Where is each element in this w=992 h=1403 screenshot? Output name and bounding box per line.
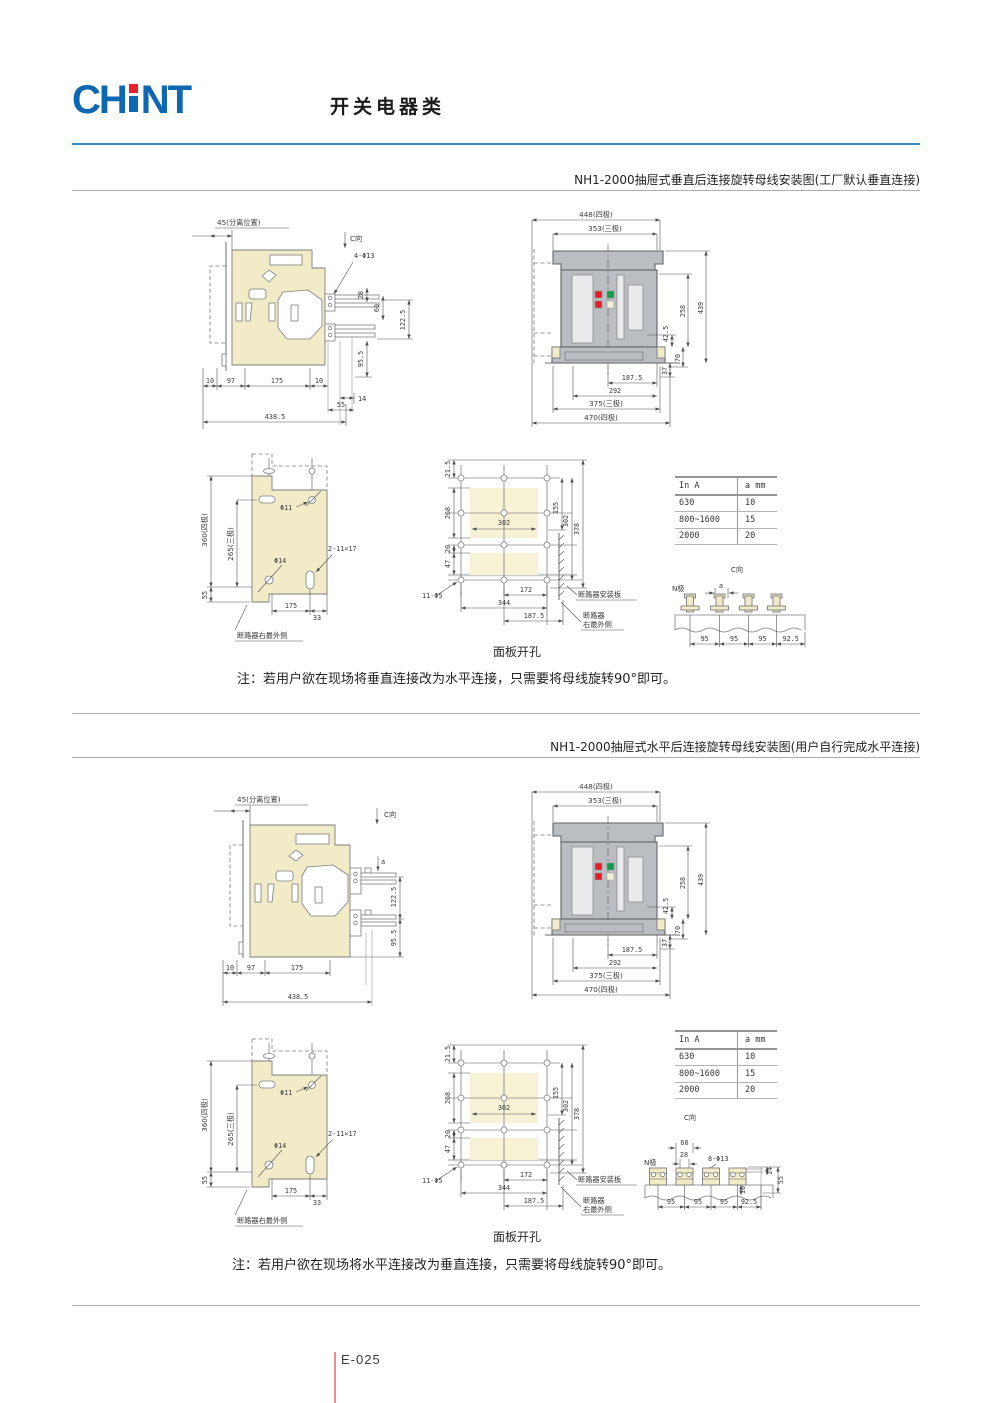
projection-lines — [328, 337, 352, 425]
dim-label: 2-11×17 — [328, 545, 357, 553]
part-label: 断路器右最外侧 — [237, 1216, 287, 1225]
view-label: C向 — [731, 565, 743, 574]
s1-mounting-plate-drawing: Φ11 Φ14 2-11×17 360(四极) 55 265(三极) 175 3… — [195, 444, 425, 659]
header-rule — [72, 143, 920, 145]
dim-label: 10 — [206, 377, 214, 385]
section1-note: 注：若用户欲在现场将垂直连接改为水平连接，只需要将母线旋转90°即可。 — [237, 668, 676, 687]
part-label: 断路器 — [583, 1196, 605, 1205]
table-row: 630 10 — [675, 496, 777, 513]
col-header: In A — [675, 1032, 738, 1048]
dim-label: 45(分离位置) — [217, 218, 261, 227]
dim-label: 95 — [667, 1198, 675, 1206]
s1-panel-cutout-drawing: 302 21.5 268 20 47 155 302 378 172 344 1… — [420, 445, 670, 670]
dim-label: 28 — [680, 1151, 688, 1159]
drawing-caption: 面板开孔 — [493, 1230, 541, 1244]
s2-front-view-drawing: 448(四极) 353(三极) 258 439 42.5 70 37 187.5… — [520, 778, 750, 1023]
part-label: N极 — [672, 584, 685, 593]
dim-label: 187.5 — [622, 374, 642, 382]
dim-label: 448(四极) — [579, 782, 613, 791]
dim-label: Φ11 — [280, 504, 292, 512]
dim-label: 375(三极) — [589, 399, 623, 408]
cell: 10 — [738, 1052, 755, 1062]
dim-label: 438.5 — [265, 413, 285, 421]
page-title: 开关电器类 — [330, 92, 445, 119]
dim-label: 60 — [680, 1139, 688, 1147]
dim-label: 55 — [777, 1176, 785, 1184]
col-header: In A — [675, 478, 738, 494]
dim-label: 187.5 — [524, 612, 544, 620]
part-label: 断路器安装板 — [578, 590, 621, 599]
dim-label: 42.5 — [662, 326, 670, 342]
dim-label: 14 — [766, 1167, 774, 1175]
footer-rule — [72, 1305, 920, 1306]
dim-label: 258 — [679, 877, 687, 889]
dim-label: 95.5 — [357, 351, 365, 367]
dim-label: 10 — [226, 964, 234, 972]
cell: 800~1600 — [675, 1066, 738, 1082]
dim-label: 14 — [358, 395, 366, 403]
footer-accent-line — [334, 1352, 336, 1403]
dim-label: 95.5 — [390, 930, 398, 946]
cell: 630 — [675, 1050, 738, 1066]
s2-rating-table: In A a mm 630 10 800~1600 15 2000 20 — [675, 1030, 777, 1099]
dim-label: C向 — [350, 234, 362, 243]
dim-label: 21.5 — [444, 461, 452, 477]
cell: 20 — [738, 531, 755, 541]
breaker-front-body — [534, 244, 680, 374]
cell: 2000 — [675, 1083, 738, 1099]
dim-label: 97 — [247, 964, 255, 972]
cell: 630 — [675, 496, 738, 512]
dim-label: 344 — [498, 599, 510, 607]
dim-label: 70 — [674, 354, 682, 362]
dim-label: 33 — [313, 1199, 321, 1207]
dim-label: 33 — [313, 614, 321, 622]
dim-label: 172 — [520, 1171, 532, 1179]
logo-text-ch: CH — [72, 84, 126, 116]
dim-label: 375(三极) — [589, 971, 623, 980]
logo-i-glyph — [129, 84, 138, 112]
rear-terminals — [325, 294, 379, 341]
cell: 2000 — [675, 529, 738, 545]
part-label: 断路器 — [583, 611, 605, 620]
dim-label: 37 — [661, 939, 669, 947]
s2-mounting-plate-drawing: Φ11 Φ14 2-11×17 360(四极) 55 265(三极) 175 3… — [195, 1029, 425, 1244]
dim-label: 20 — [444, 1130, 452, 1138]
dim-label: a — [381, 858, 385, 866]
dim-label: 42.5 — [662, 898, 670, 914]
dim-label: 292 — [609, 959, 621, 967]
table-row: 2000 20 — [675, 529, 777, 546]
dim-label: 2-11×17 — [328, 1130, 357, 1138]
indicator-cream — [607, 301, 614, 308]
dim-label: 47 — [444, 560, 452, 568]
dim-label: 175 — [285, 1187, 297, 1195]
dim-label: 344 — [498, 1184, 510, 1192]
breaker-front-body — [534, 816, 680, 946]
dim-label: 302 — [498, 519, 510, 527]
chint-logo: CH NT — [72, 84, 190, 116]
section1-rule — [72, 190, 920, 191]
logo-red-dot-icon — [129, 84, 138, 93]
col-header: a mm — [738, 481, 765, 491]
cell: 800~1600 — [675, 512, 738, 528]
dim-label: 302 — [562, 1100, 570, 1112]
cell: 20 — [738, 1085, 755, 1095]
dim-label: 360(四极) — [200, 513, 209, 547]
view-label: C向 — [684, 1113, 696, 1122]
table-row: 2000 20 — [675, 1083, 777, 1100]
dim-label: 175 — [271, 377, 283, 385]
part-label: 断路器右最外侧 — [237, 631, 287, 640]
s1-side-view-drawing: 45(分离位置) C向 4-Φ13 28 60 122.5 95.5 10 97 — [170, 208, 500, 443]
dim-label: 268 — [444, 1092, 452, 1104]
dim-label: 439 — [697, 874, 705, 886]
dim-label: 55 — [201, 591, 209, 599]
s2-side-view-drawing: 45(分离位置) C向 a 122.5 95.5 10 97 175 438.5 — [188, 780, 503, 1035]
dim-label: 268 — [444, 507, 452, 519]
dim-label: Φ14 — [274, 1142, 286, 1150]
dim-label: 92.5 — [741, 1198, 757, 1206]
dim-label: 95 — [730, 635, 738, 643]
dim-label: 470(四极) — [584, 985, 618, 994]
dim-label: 172 — [520, 586, 532, 594]
indicator-red — [595, 863, 602, 870]
dim-label: 20 — [444, 545, 452, 553]
indicator-cream — [607, 873, 614, 880]
s1-busbar-view-drawing: C向 N极 a 95 95 95 92.5 — [658, 558, 833, 663]
dim-label: Φ14 — [274, 557, 286, 565]
dim-label: 438.5 — [288, 993, 308, 1001]
dim-label: 265(三极) — [226, 1112, 235, 1146]
dim-label: 95 — [694, 1198, 702, 1206]
dim-label: 10 — [739, 1186, 747, 1194]
dim-label: 155 — [552, 502, 560, 514]
indicator-red — [595, 301, 602, 308]
cell: 10 — [738, 498, 755, 508]
dim-label: 21.5 — [444, 1046, 452, 1062]
dim-label: 122.5 — [399, 310, 407, 330]
breaker-side-body — [230, 820, 350, 958]
indicator-red — [595, 873, 602, 880]
indicator-green — [607, 863, 614, 870]
plate-body — [252, 1039, 327, 1187]
s1-rating-table: In A a mm 630 10 800~1600 15 2000 20 — [675, 476, 777, 545]
dim-label: 378 — [573, 523, 581, 535]
dim-label: a — [719, 582, 723, 590]
dim-label: 10 — [315, 377, 323, 385]
s1-front-view-drawing: 448(四极) 353(三极) 258 439 42.5 70 37 187.5… — [520, 206, 750, 451]
breaker-side-body — [210, 242, 325, 371]
dim-label: C向 — [384, 810, 396, 819]
dim-label: 187.5 — [622, 946, 642, 954]
table-row: 630 10 — [675, 1050, 777, 1067]
s2-busbar-view-drawing: C向 60 28 N极 8-Φ13 14 55 10 — [628, 1105, 933, 1240]
part-label: 断路器安装板 — [578, 1175, 621, 1184]
section2-title: NH1-2000抽屉式水平后连接旋转母线安装图(用户自行完成水平连接) — [550, 738, 920, 755]
dim-label: 155 — [552, 1087, 560, 1099]
dim-label: 187.5 — [524, 1197, 544, 1205]
cell: 15 — [738, 1069, 755, 1079]
dim-label: 4-Φ13 — [354, 252, 374, 260]
logo-i-stem — [129, 96, 138, 112]
section2-note: 注：若用户欲在现场将水平连接改为垂直连接，只需要将母线旋转90°即可。 — [232, 1254, 671, 1273]
dim-label: 470(四极) — [584, 413, 618, 422]
table-header-row: In A a mm — [675, 476, 777, 496]
dim-label: 60 — [373, 304, 381, 312]
dim-label: 47 — [444, 1145, 452, 1153]
dim-label: 175 — [285, 602, 297, 610]
dim-label: 378 — [573, 1108, 581, 1120]
dim-label: 448(四极) — [579, 210, 613, 219]
dim-label: 353(三极) — [588, 796, 622, 805]
col-header: a mm — [738, 1035, 765, 1045]
dim-label: 353(三极) — [588, 224, 622, 233]
table-header-row: In A a mm — [675, 1030, 777, 1050]
dim-label: 45(分离位置) — [237, 795, 281, 804]
table-row: 800~1600 15 — [675, 512, 777, 529]
drawing-caption: 面板开孔 — [493, 645, 541, 659]
dim-label: 258 — [679, 305, 687, 317]
logo-text-nt: NT — [141, 84, 190, 116]
busbars — [681, 594, 786, 612]
dim-label: 8-Φ13 — [708, 1155, 728, 1163]
part-label: 右最外侧 — [583, 620, 612, 629]
dim-label: 439 — [697, 302, 705, 314]
dim-label: 55 — [337, 401, 345, 409]
cell: 15 — [738, 515, 755, 525]
page-number: E-025 — [341, 1352, 381, 1367]
part-label: 右最外侧 — [583, 1205, 612, 1214]
table-row: 800~1600 15 — [675, 1066, 777, 1083]
dim-label: Φ11 — [280, 1089, 292, 1097]
dim-label: 302 — [498, 1104, 510, 1112]
dim-label: 95 — [758, 635, 766, 643]
dim-label: 265(三极) — [226, 527, 235, 561]
dim-label: 55 — [201, 1176, 209, 1184]
catalog-page: CH NT 开关电器类 NH1-2000抽屉式垂直后连接旋转母线安装图(工厂默认… — [0, 0, 992, 1403]
dim-label: 122.5 — [390, 887, 398, 907]
section2-rule — [72, 757, 920, 758]
dim-label: 28 — [357, 291, 365, 299]
dim-label: 175 — [291, 964, 303, 972]
dim-label: 292 — [609, 387, 621, 395]
dim-label: 95 — [701, 635, 709, 643]
dim-label: 302 — [562, 515, 570, 527]
dim-label: 97 — [227, 377, 235, 385]
dim-label: 95 — [720, 1198, 728, 1206]
base-strip — [675, 615, 805, 632]
section-divider — [72, 713, 920, 714]
terminal-blocks — [650, 1168, 747, 1185]
dim-label: 360(四极) — [200, 1098, 209, 1132]
dim-label: 92.5 — [783, 635, 799, 643]
section1-title: NH1-2000抽屉式垂直后连接旋转母线安装图(工厂默认垂直连接) — [574, 171, 920, 188]
part-label: N极 — [644, 1158, 657, 1167]
indicator-green — [607, 291, 614, 298]
plate-body — [252, 454, 327, 602]
dim-label: 70 — [674, 926, 682, 934]
indicator-red — [595, 291, 602, 298]
dim-label: 37 — [661, 367, 669, 375]
